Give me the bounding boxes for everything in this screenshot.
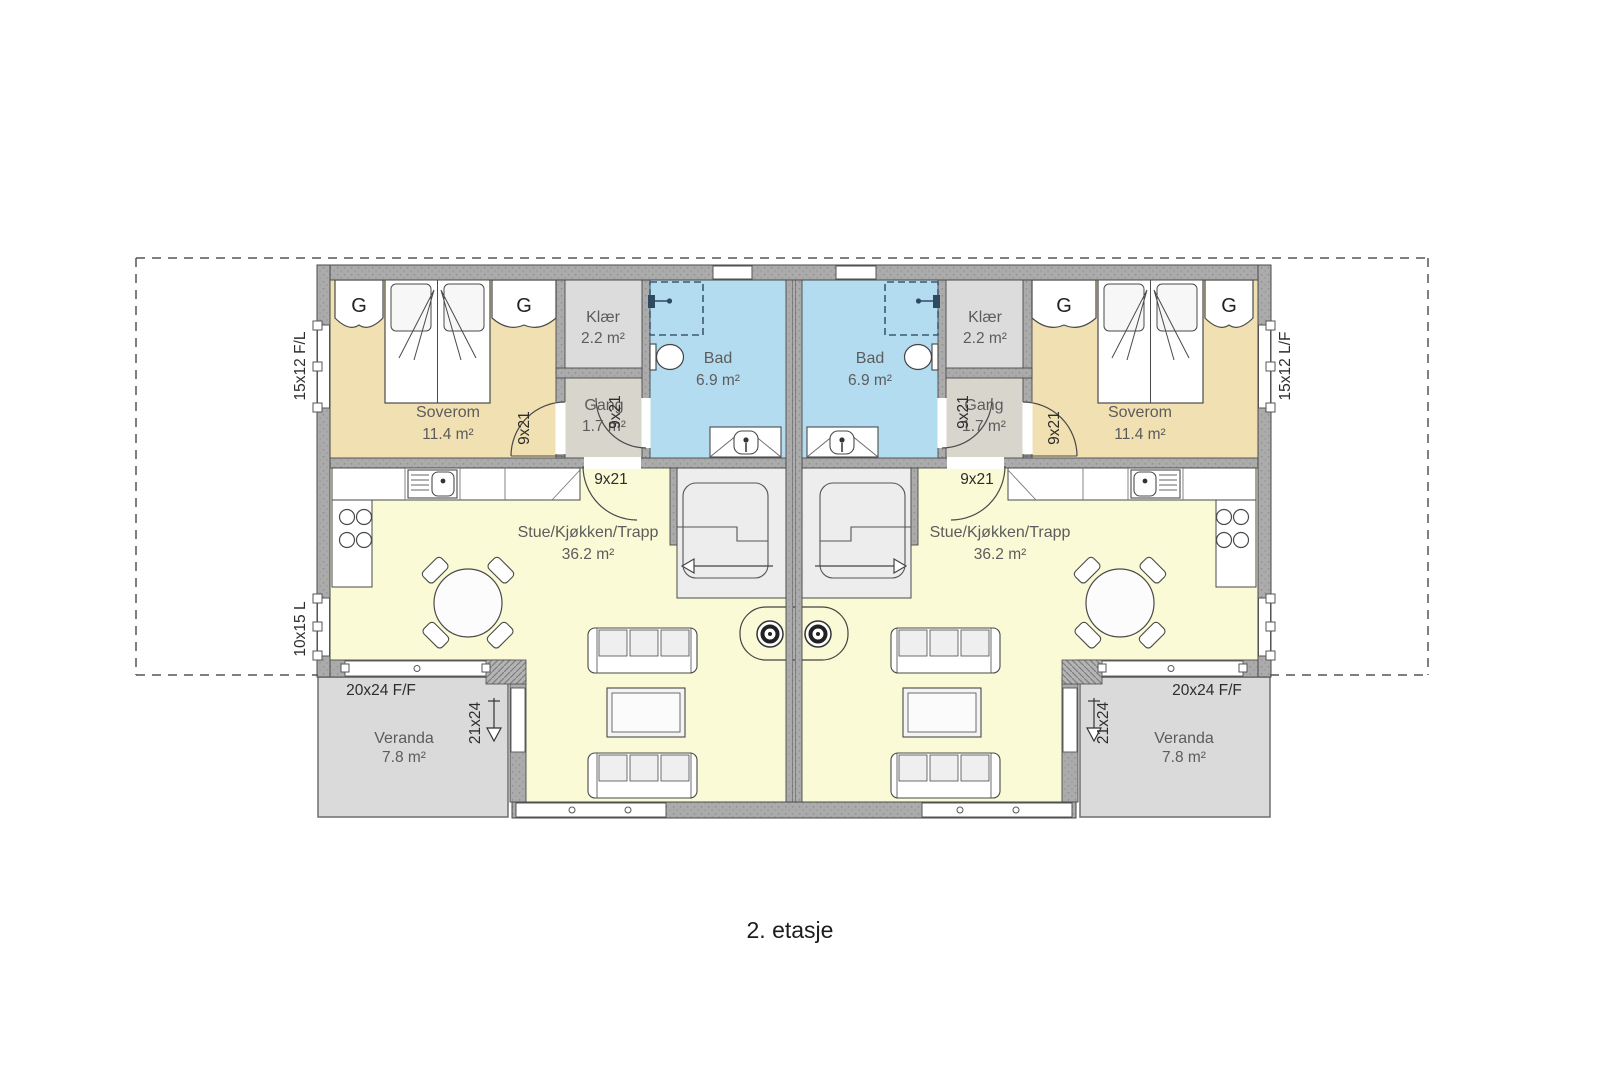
wardrobe-label: G: [1056, 295, 1072, 317]
room-label-veranda: Veranda: [1154, 730, 1214, 747]
room-area-soverom: 11.4 m²: [1114, 426, 1165, 443]
door-dim-living: 9x21: [594, 471, 628, 488]
window-dim-veranda: 20x24 F/F: [346, 682, 416, 699]
room-label-bad: Bad: [704, 350, 732, 367]
wardrobe-label: G: [1221, 295, 1237, 317]
party-wall: [786, 280, 793, 818]
room-label-stue: Stue/Kjøkken/Trapp: [518, 524, 659, 541]
room-area-soverom: 11.4 m²: [422, 426, 473, 443]
window-dim-living-left: 10x15 L: [292, 601, 309, 657]
window-dim-bedroom-right: 15x12 L/F: [1277, 332, 1294, 401]
room-label-soverom: Soverom: [1108, 404, 1172, 421]
floor-plan-svg: Soverom 11.4 m² Klær 2.2 m² Bad 6.9 m² G…: [0, 0, 1600, 1067]
room-label-soverom: Soverom: [416, 404, 480, 421]
room-label-veranda: Veranda: [374, 730, 434, 747]
room-area-klaer: 2.2 m²: [963, 330, 1007, 347]
wardrobe-label: G: [516, 295, 532, 317]
room-area-veranda: 7.8 m²: [1162, 749, 1206, 766]
door-dim-veranda: 21x24: [1095, 702, 1112, 745]
room-area-bad: 6.9 m²: [848, 372, 892, 389]
room-label-stue: Stue/Kjøkken/Trapp: [930, 524, 1071, 541]
door-dim-living: 9x21: [960, 471, 994, 488]
wardrobe-label: G: [351, 295, 367, 317]
party-wall: [795, 280, 802, 818]
room-area-veranda: 7.8 m²: [382, 749, 426, 766]
room-label-klaer: Klær: [586, 309, 620, 326]
door-dim-veranda: 21x24: [467, 702, 484, 745]
room-area-bad: 6.9 m²: [696, 372, 740, 389]
room-label-klaer: Klær: [968, 309, 1002, 326]
door-dim-bath: 9x21: [955, 395, 972, 429]
window-dim-veranda: 20x24 F/F: [1172, 682, 1242, 699]
floor-plan-page: Soverom 11.4 m² Klær 2.2 m² Bad 6.9 m² G…: [0, 0, 1600, 1067]
room-area-klaer: 2.2 m²: [581, 330, 625, 347]
window-dim-bedroom-left: 15x12 F/L: [292, 331, 309, 400]
page-title: 2. etasje: [747, 917, 834, 943]
door-dim-bath: 9x21: [607, 395, 624, 429]
room-area-stue: 36.2 m²: [974, 546, 1027, 563]
door-dim-bedroom: 9x21: [516, 411, 533, 445]
room-label-bad: Bad: [856, 350, 884, 367]
door-dim-bedroom: 9x21: [1046, 411, 1063, 445]
room-area-stue: 36.2 m²: [562, 546, 615, 563]
